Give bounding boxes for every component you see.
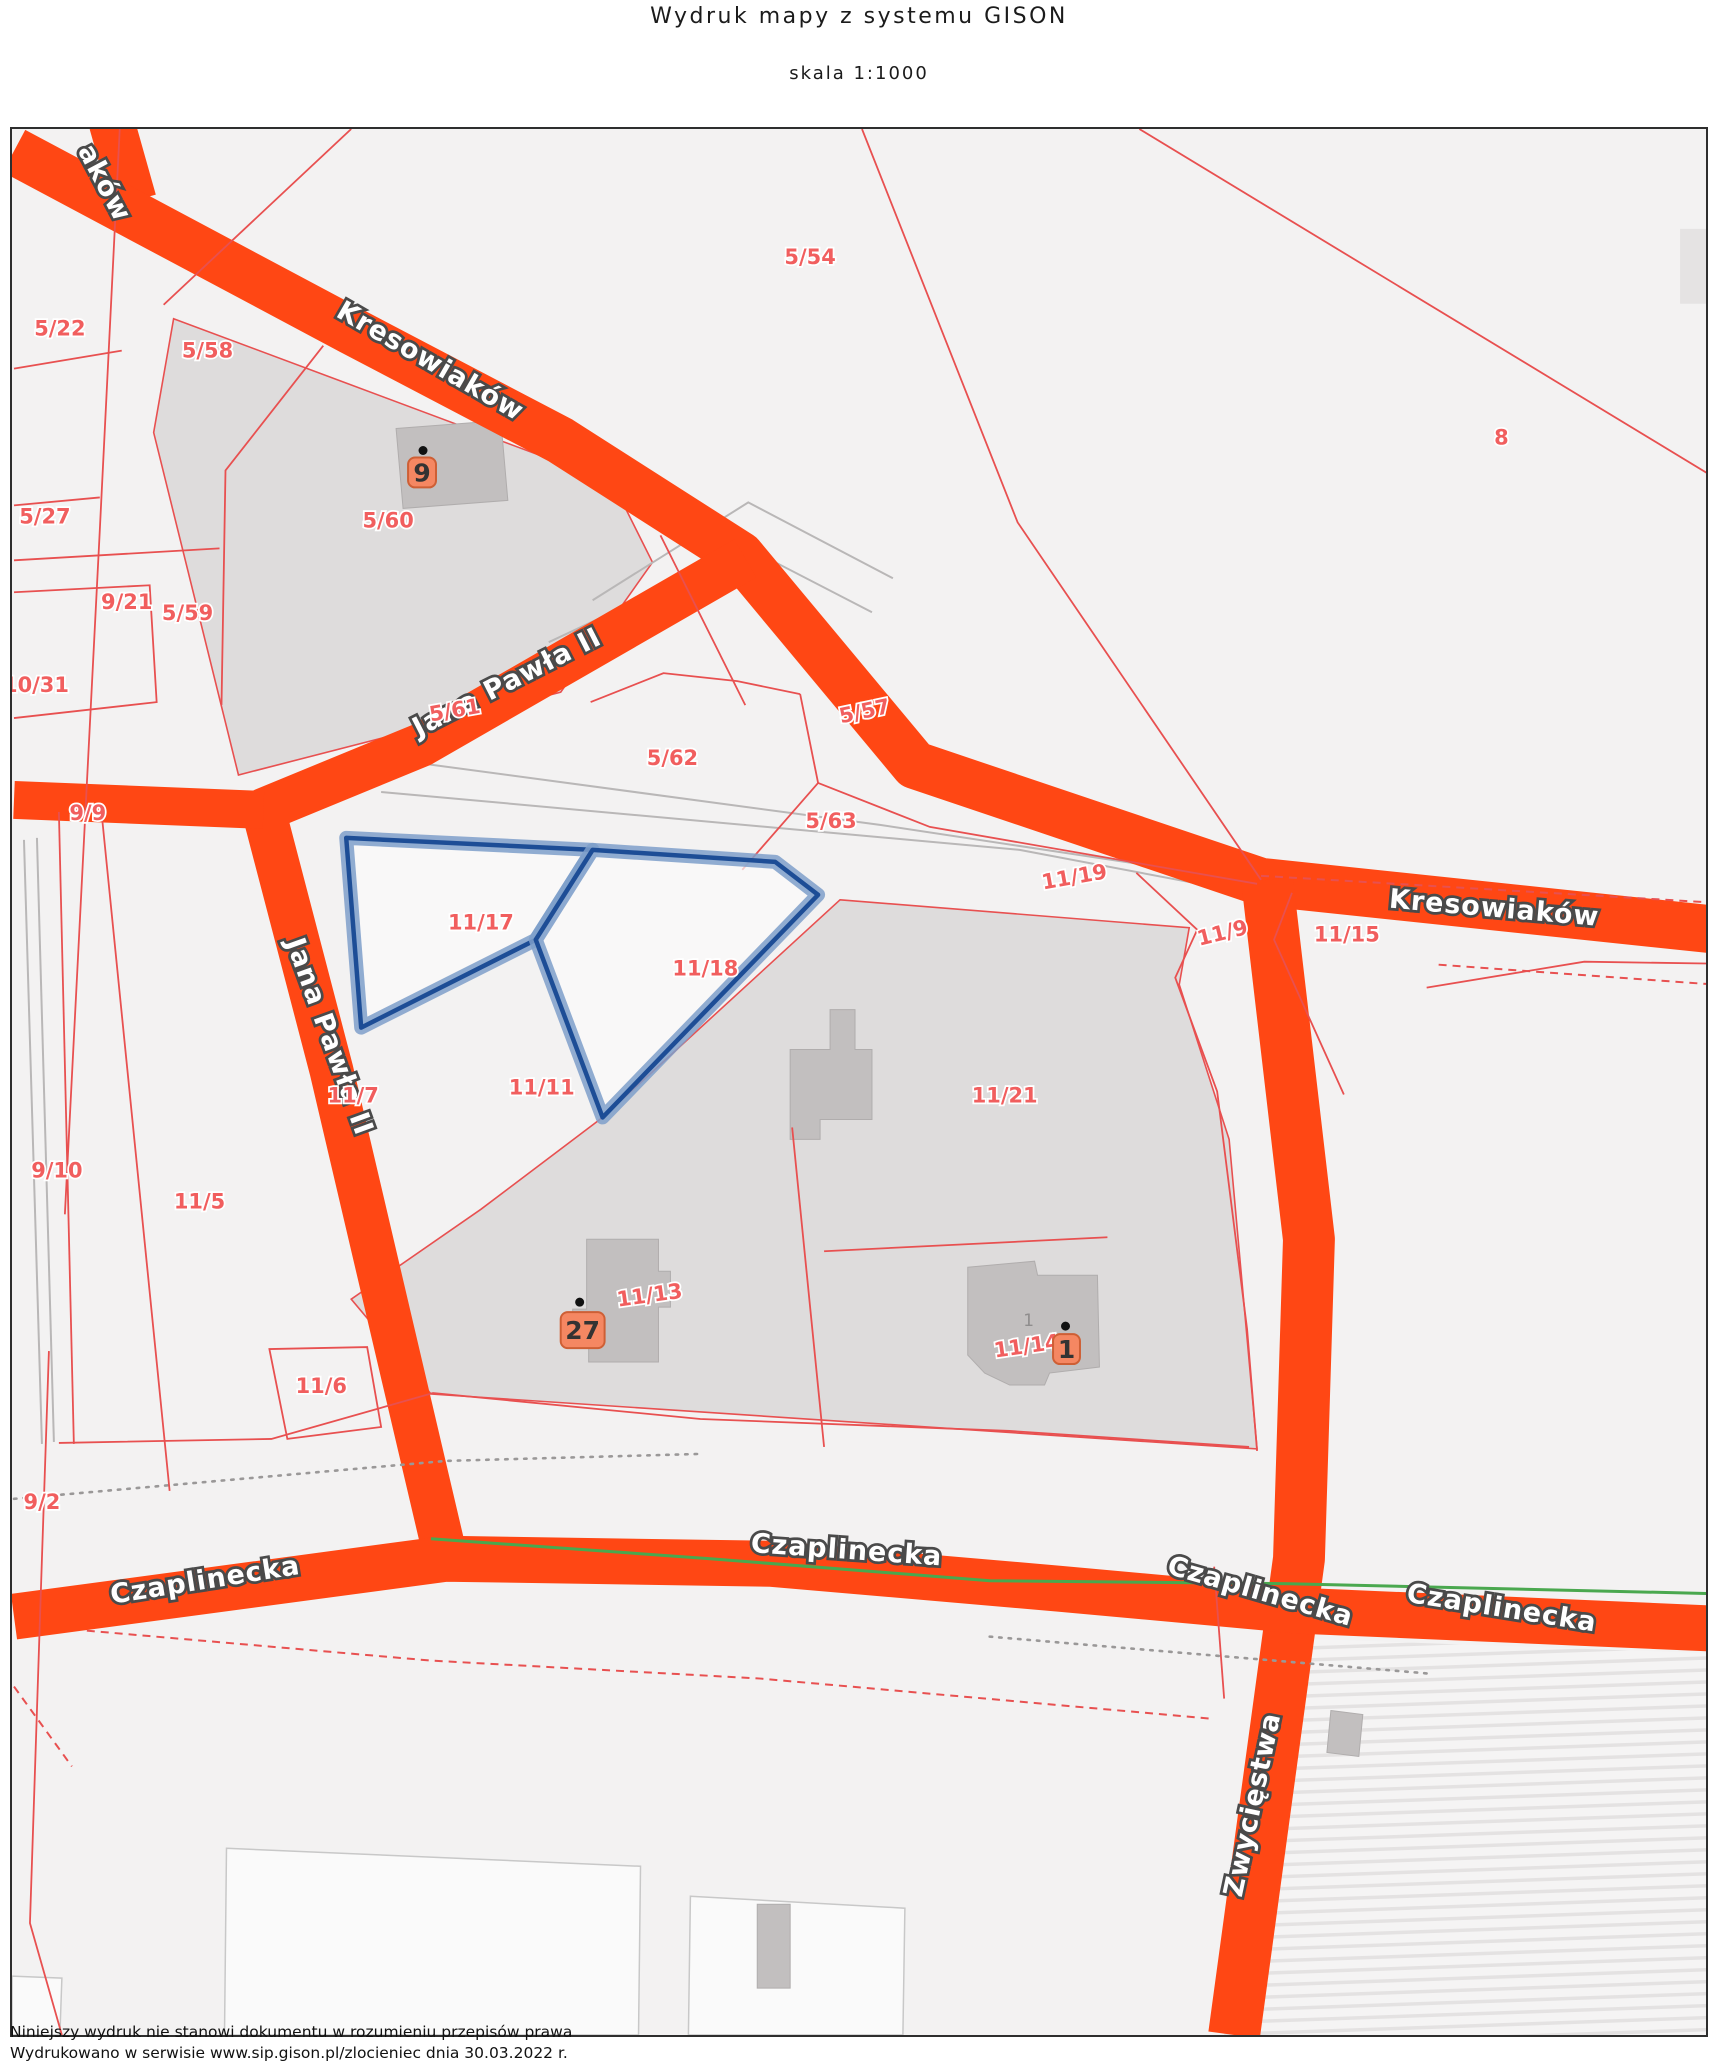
parcel-label: 9/21 [101, 590, 152, 614]
address-badge-number: 1 [1058, 1335, 1075, 1364]
parcel-label: 9/2 [24, 1490, 61, 1514]
address-point-dot [419, 446, 428, 455]
parcel-label: 5/58 [182, 339, 233, 363]
parcel-label: 11/21 [972, 1083, 1038, 1107]
parcel-label: 11/7 [328, 1083, 379, 1107]
building-number-label: 1 [1023, 1310, 1034, 1330]
map-frame: akówKresowiakówJana Pawła IIJana Pawła I… [10, 127, 1708, 2037]
parcel-label: 10/31 [12, 673, 69, 697]
building-footprint [757, 1904, 790, 1988]
parcel-label: 5/27 [19, 504, 70, 528]
footer-line-1: Niniejszy wydruk nie stanowi dokumentu w… [10, 2022, 572, 2043]
edge-gray-patch [1680, 229, 1706, 304]
parcel-label: 5/54 [784, 245, 835, 269]
page-title: Wydruk mapy z systemu GISON [0, 4, 1718, 29]
address-point-dot [1061, 1322, 1070, 1331]
address-badge-number: 9 [413, 458, 430, 487]
parcel-label: 11/15 [1314, 923, 1380, 947]
parcel-label: 11/17 [448, 911, 514, 935]
gison-map-print: Wydruk mapy z systemu GISON skala 1:1000… [0, 0, 1718, 2066]
parcel-label: 9/9 [69, 801, 106, 825]
faint-building [688, 1896, 904, 2035]
building-footprint [1327, 1711, 1363, 1757]
map-canvas: akówKresowiakówJana Pawła IIJana Pawła I… [12, 129, 1706, 2035]
parcel-label: 11/11 [509, 1075, 575, 1099]
parcel-label: 9/10 [31, 1158, 82, 1182]
parcel-label: 8 [1494, 425, 1509, 449]
parcel-label: 5/22 [34, 317, 85, 341]
faint-building [224, 1848, 640, 2035]
parcel-label: 5/63 [805, 809, 856, 833]
parcel-label: 11/6 [296, 1374, 347, 1398]
parcel-label: 5/60 [362, 508, 413, 532]
address-badge-number: 27 [565, 1316, 600, 1345]
footer-disclaimer: Niniejszy wydruk nie stanowi dokumentu w… [10, 2022, 572, 2064]
address-point-dot [575, 1298, 584, 1307]
road-west [14, 800, 263, 810]
parcel-label: 5/62 [647, 746, 698, 770]
parcel-label: 11/18 [672, 957, 738, 981]
map-scale: skala 1:1000 [0, 63, 1718, 84]
parcel-label: 11/5 [174, 1189, 225, 1213]
parcel-label: 5/59 [162, 601, 213, 625]
footer-line-2: Wydrukowano w serwisie www.sip.gison.pl/… [10, 2043, 572, 2064]
